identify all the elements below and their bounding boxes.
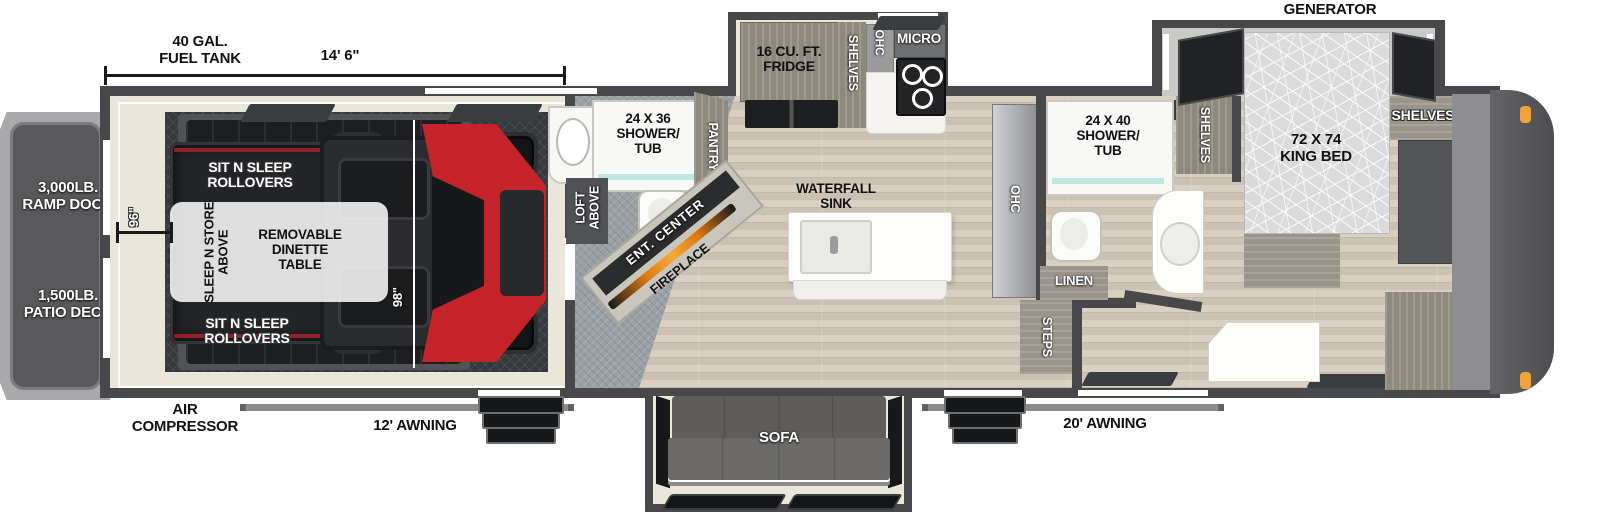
dimension-tick-right [563,66,566,85]
sofa-slide-wall-left [645,390,653,512]
bedroom-tv-left [1178,28,1244,106]
half-bath-sink [556,118,590,166]
range-hood [872,16,945,30]
garage-length-dim-line [413,120,415,368]
sofa-slide-wall-right [904,390,912,512]
length-dimension-label: 14' 6" [280,48,400,65]
sleep-n-store-label: SLEEP N STORE ABOVE [203,187,232,317]
burner-2 [922,66,943,87]
marker-light-top [1520,106,1531,123]
garage-width-tick-left [116,222,119,243]
sofa-slide-window-right [785,494,902,510]
half-bath-shower-label: 24 X 36 SHOWER/ TUB [592,112,704,157]
floor-vent-entry [1081,372,1178,386]
king-bed-label: 72 X 74 KING BED [1244,132,1388,165]
entry-steps-3 [952,427,1018,444]
bed-slide-wall-left [1152,20,1162,96]
fuel-tank-label: 40 GAL. FUEL TANK [120,34,280,67]
kitchen-slide-wall-left [728,12,736,96]
half-bath-shower-glass [598,174,698,180]
wall-bedroom-divider [1232,96,1241,182]
awning-20-label: 20' AWNING [1030,416,1180,433]
ramp-opening-bottom [103,258,110,358]
garage-width-dim-line [117,231,172,234]
marker-light-bottom [1520,372,1531,389]
roof-vent-garage-left [240,104,336,122]
sofa-slide-panel-right [888,396,902,489]
utv-hood-grille [500,190,544,296]
steps-label: STEPS [1039,303,1053,371]
bathroom-shower-label: 24 X 40 SHOWER/ TUB [1046,114,1170,159]
ramp-door-panel [10,122,102,390]
loft-above-label: LOFT ABOVE [574,176,602,240]
bedroom-dresser [1398,140,1458,264]
dimension-tick-left [104,66,107,85]
garage-width-label: 96" [127,187,141,247]
fridge-lower-doors [745,100,838,128]
awning-12-label: 12' AWNING [340,418,490,435]
garage-steps-3 [486,427,556,444]
island-counter-lip [793,280,947,300]
micro-label: MICRO [888,32,950,47]
sofa-label: SOFA [668,430,890,447]
bathroom-shelves-label: SHELVES [1197,95,1211,175]
air-compressor-label: AIR COMPRESSOR [110,402,260,435]
island-faucet [830,236,838,254]
bedroom-white-dresser [1208,322,1320,382]
length-dimension-line [105,74,565,77]
waterfall-sink-label: WATERFALL SINK [776,182,896,212]
rollovers-top-label: SIT N SLEEP ROLLOVERS [185,160,315,191]
window-bottom-right [1078,390,1208,396]
washer-dryer-cabinet [1385,292,1455,390]
garage-length-label: 98" [391,267,405,327]
sofa-slide-window-left [661,494,786,510]
front-cap [1490,90,1554,394]
rollovers-bottom-label: SIT N SLEEP ROLLOVERS [182,316,312,347]
bathroom-vanity-sink [1160,222,1200,266]
fridge-label: 16 CU. FT. FRIDGE [740,44,838,75]
window-top-garage [425,88,597,94]
bed-slide-wall-right [1435,20,1445,96]
wall-steps-divider [1072,306,1082,388]
ramp-opening-top [103,140,110,235]
burner-3 [912,88,933,109]
living-ohc-label: OHC [1007,169,1021,229]
roof-vent-garage-right [447,104,543,122]
garage-width-tick-right [170,222,173,243]
garage-door-opening [565,238,575,300]
linen-label: LINEN [1040,274,1108,288]
bathroom-shower-glass [1052,178,1164,184]
bathroom-toilet-seat [1060,218,1088,250]
bedroom-tv-right [1392,32,1436,102]
bed-slide-window-left [1163,34,1169,90]
front-cap-shelf [1452,94,1492,390]
bed-foot-bench [1244,232,1340,288]
rv-floorplan: 40 GAL. FUEL TANK 14' 6" GENERATOR PREP … [0,0,1600,520]
dinette-label: REMOVABLE DINETTE TABLE [240,228,360,273]
kitchen-shelves-label: SHELVES [845,23,859,103]
utv-rollbar-top [174,148,336,152]
burner-1 [902,64,923,85]
